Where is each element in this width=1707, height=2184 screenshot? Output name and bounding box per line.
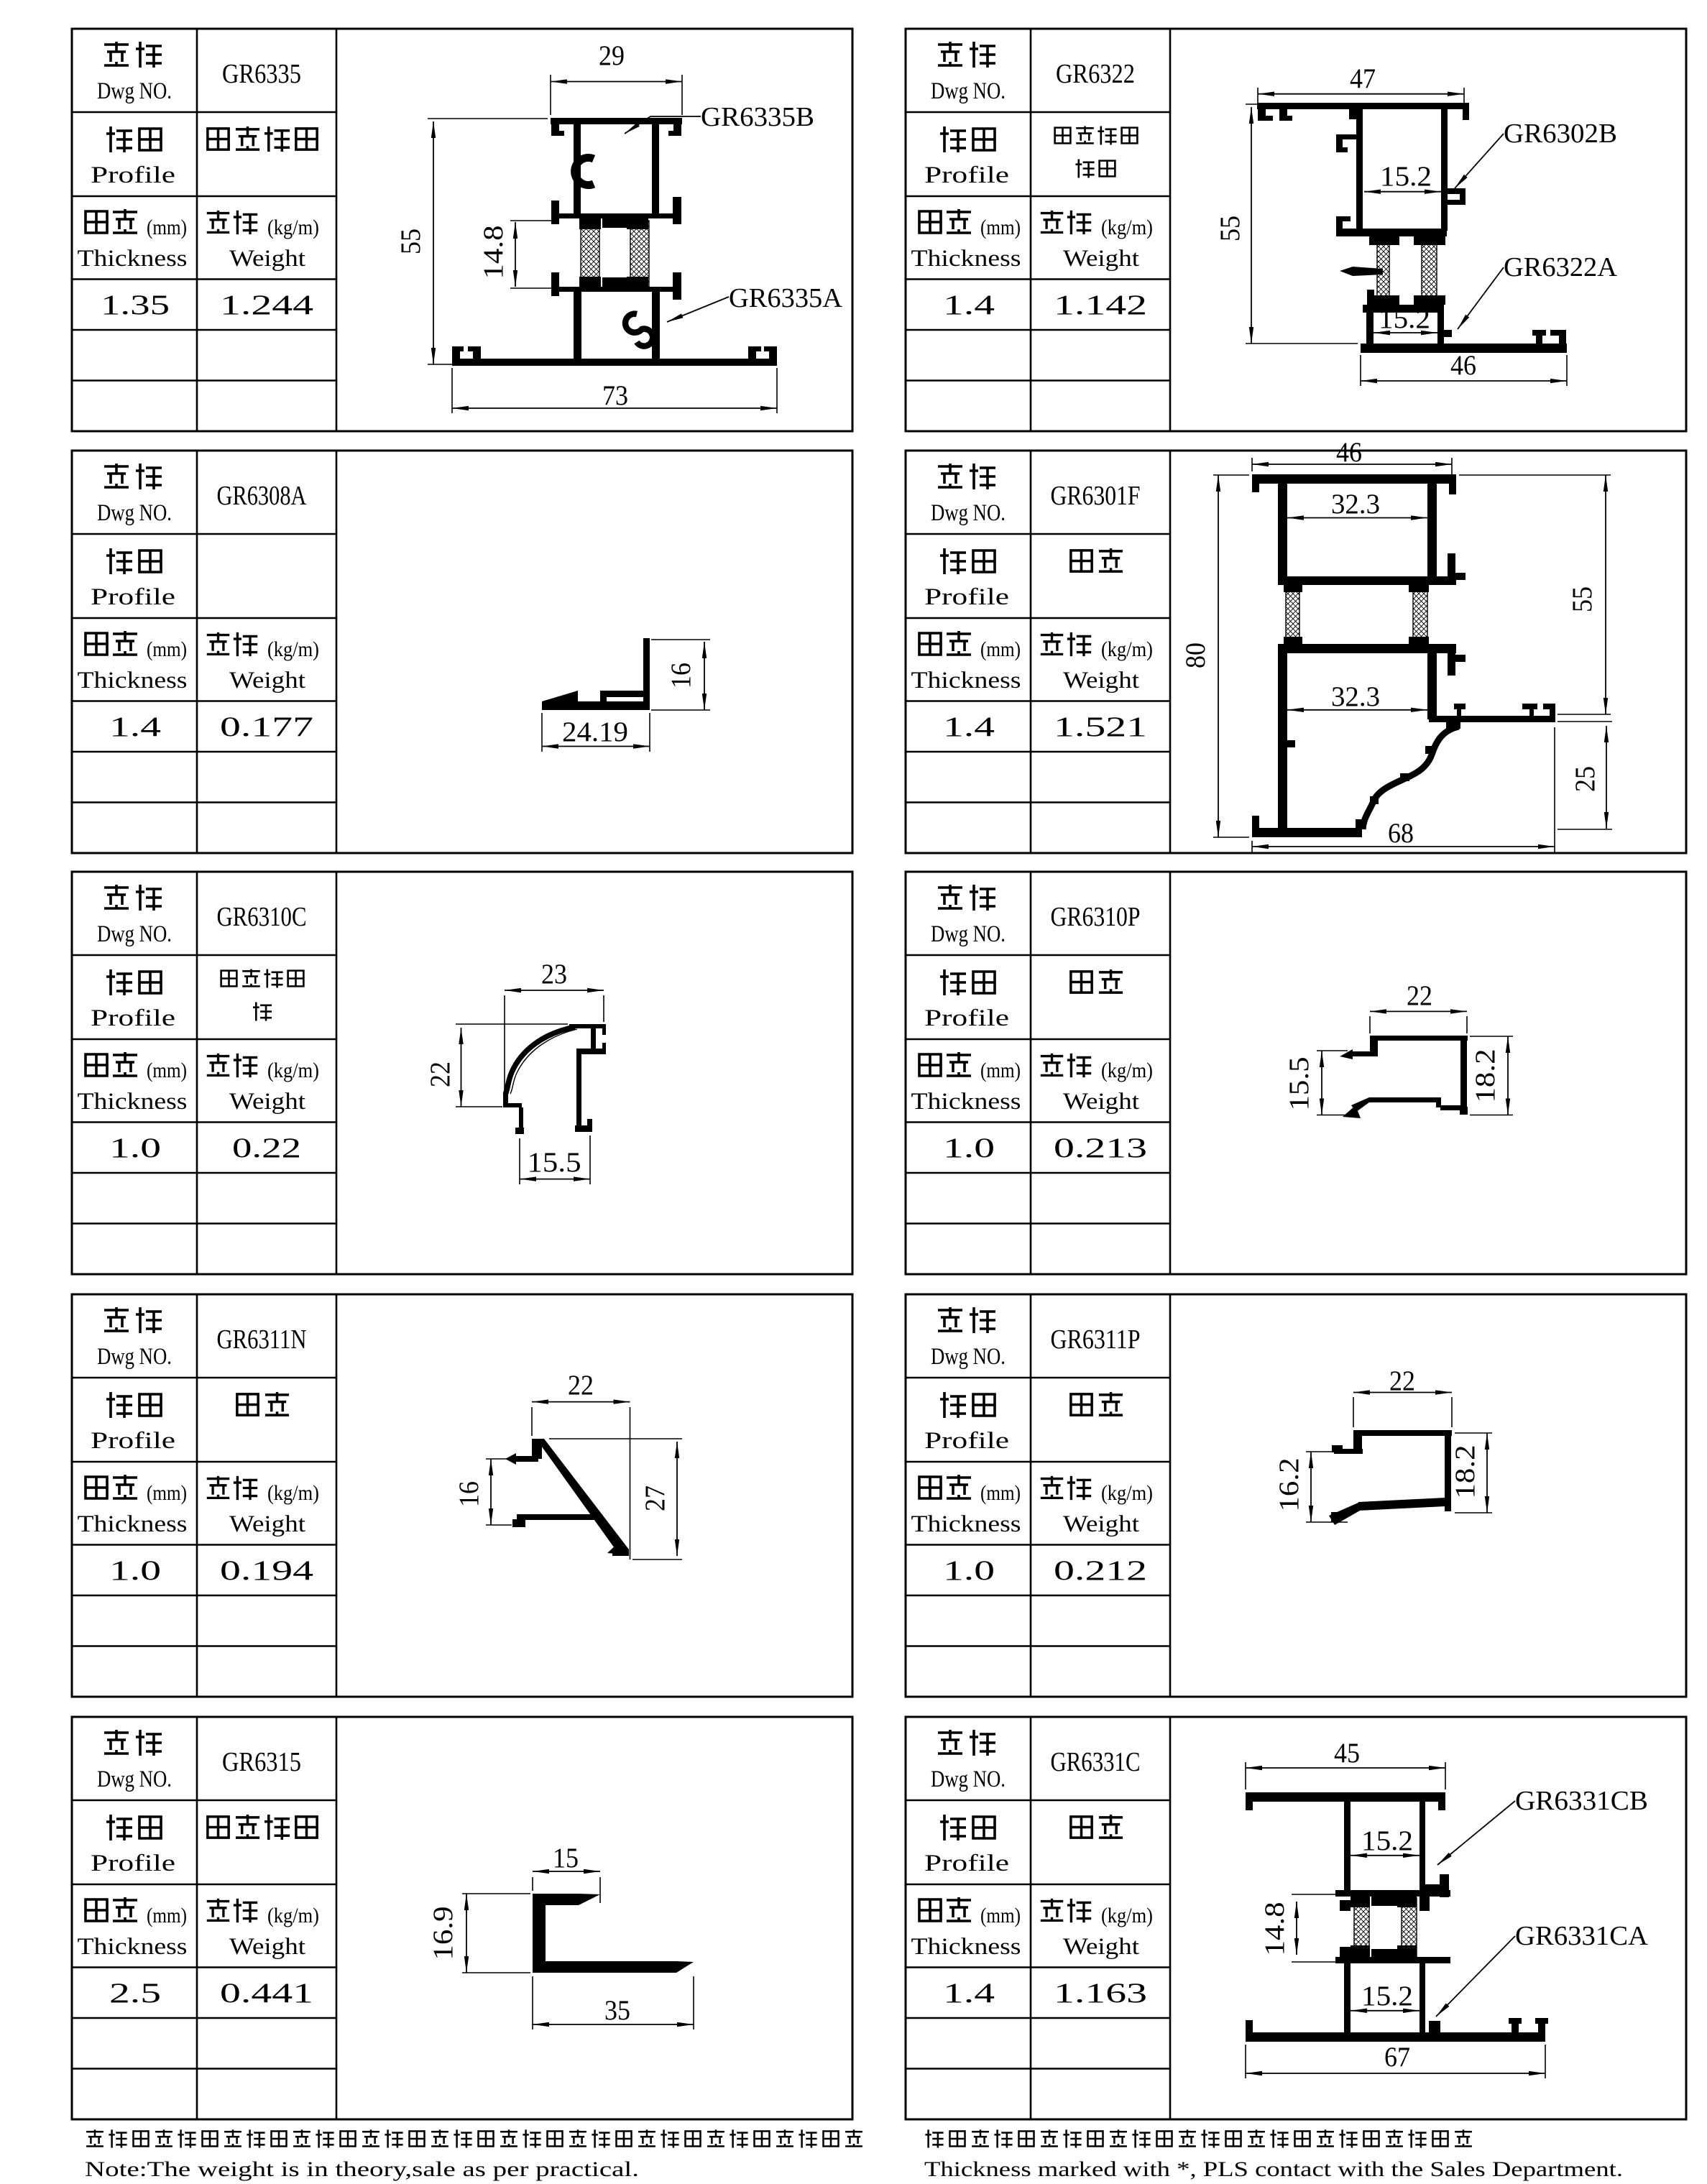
svg-text:25: 25 <box>1570 766 1601 792</box>
svg-text:Note:The weight is in theory,s: Note:The weight is in theory,sale as per… <box>85 2157 639 2181</box>
svg-text:GR6315: GR6315 <box>222 1747 301 1777</box>
svg-text:15.2: 15.2 <box>1380 161 1432 192</box>
svg-text:1.244: 1.244 <box>220 290 313 321</box>
svg-text:GR6301F: GR6301F <box>1051 481 1141 511</box>
svg-text:27: 27 <box>640 1485 671 1511</box>
svg-text:(mm): (mm) <box>980 1059 1021 1082</box>
svg-text:Dwg NO.: Dwg NO. <box>931 500 1006 526</box>
svg-text:GR6310P: GR6310P <box>1051 902 1141 932</box>
svg-text:Dwg NO.: Dwg NO. <box>931 1344 1006 1370</box>
svg-text:18.2: 18.2 <box>1450 1445 1481 1499</box>
svg-text:Dwg NO.: Dwg NO. <box>931 921 1006 947</box>
svg-text:Weight: Weight <box>229 246 305 272</box>
svg-text:Weight: Weight <box>1063 1511 1139 1537</box>
svg-text:1.0: 1.0 <box>943 1555 995 1586</box>
svg-text:Dwg NO.: Dwg NO. <box>97 1344 172 1370</box>
svg-text:1.4: 1.4 <box>109 711 161 742</box>
svg-text:(mm): (mm) <box>980 637 1021 661</box>
svg-text:GR6308A: GR6308A <box>217 481 307 511</box>
svg-text:Profile: Profile <box>924 1005 1009 1031</box>
svg-text:Thickness: Thickness <box>78 1511 188 1537</box>
svg-text:Profile: Profile <box>91 1428 175 1454</box>
svg-text:GR6310C: GR6310C <box>217 902 307 932</box>
svg-text:0.441: 0.441 <box>220 1978 313 2009</box>
svg-text:Thickness: Thickness <box>911 1089 1021 1115</box>
svg-text:GR6331CB: GR6331CB <box>1515 1786 1648 1816</box>
svg-text:55: 55 <box>1215 216 1246 241</box>
svg-text:1.4: 1.4 <box>943 1978 995 2009</box>
svg-text:67: 67 <box>1384 2042 1410 2073</box>
svg-text:GR6335A: GR6335A <box>729 283 843 313</box>
svg-text:(mm): (mm) <box>147 216 187 239</box>
svg-text:(kg/m): (kg/m) <box>1101 1059 1153 1082</box>
svg-text:0.212: 0.212 <box>1054 1555 1147 1586</box>
svg-text:45: 45 <box>1334 1738 1360 1769</box>
svg-text:47: 47 <box>1350 63 1376 94</box>
svg-text:(mm): (mm) <box>147 1059 187 1082</box>
svg-text:(kg/m): (kg/m) <box>267 1059 319 1082</box>
svg-text:1.0: 1.0 <box>943 1133 995 1164</box>
svg-text:GR6335B: GR6335B <box>701 102 814 132</box>
svg-text:GR6311P: GR6311P <box>1051 1324 1141 1355</box>
svg-text:0.213: 0.213 <box>1054 1133 1147 1164</box>
svg-text:Weight: Weight <box>229 1934 305 1960</box>
svg-text:Thickness: Thickness <box>911 1511 1021 1537</box>
svg-text:Weight: Weight <box>229 1511 305 1537</box>
svg-text:22: 22 <box>568 1370 594 1401</box>
svg-text:14.8: 14.8 <box>478 226 509 280</box>
svg-text:(kg/m): (kg/m) <box>267 1481 319 1505</box>
svg-text:(mm): (mm) <box>980 1481 1021 1505</box>
svg-text:Profile: Profile <box>924 1428 1009 1454</box>
svg-text:Weight: Weight <box>1063 246 1139 272</box>
svg-text:55: 55 <box>395 229 426 254</box>
svg-text:Thickness: Thickness <box>78 1934 188 1960</box>
svg-text:Profile: Profile <box>91 1851 175 1876</box>
svg-text:Dwg NO.: Dwg NO. <box>931 1766 1006 1792</box>
svg-text:Dwg NO.: Dwg NO. <box>97 921 172 947</box>
svg-text:15: 15 <box>553 1843 579 1874</box>
svg-text:Weight: Weight <box>1063 1089 1139 1115</box>
svg-text:14.8: 14.8 <box>1259 1902 1290 1956</box>
svg-text:GR6331C: GR6331C <box>1051 1747 1141 1777</box>
svg-text:22: 22 <box>1407 980 1432 1011</box>
svg-text:Profile: Profile <box>91 162 175 188</box>
svg-text:(kg/m): (kg/m) <box>1101 637 1153 661</box>
svg-text:22: 22 <box>425 1061 456 1087</box>
svg-text:Dwg NO.: Dwg NO. <box>97 500 172 526</box>
svg-text:Thickness: Thickness <box>911 668 1021 694</box>
svg-text:(mm): (mm) <box>147 1904 187 1927</box>
svg-text:1.4: 1.4 <box>943 711 995 742</box>
svg-text:16: 16 <box>454 1481 484 1507</box>
svg-text:46: 46 <box>1450 350 1476 381</box>
svg-text:(kg/m): (kg/m) <box>1101 1481 1153 1505</box>
svg-text:(mm): (mm) <box>980 1904 1021 1927</box>
svg-text:Thickness: Thickness <box>78 1089 188 1115</box>
svg-text:2.5: 2.5 <box>109 1978 161 2009</box>
svg-text:(kg/m): (kg/m) <box>1101 216 1153 239</box>
svg-text:Profile: Profile <box>924 1851 1009 1876</box>
svg-text:GR6335: GR6335 <box>222 59 301 89</box>
svg-text:Thickness marked with *, PLS c: Thickness marked with *, PLS contact wit… <box>924 2157 1623 2181</box>
svg-text:Dwg NO.: Dwg NO. <box>97 1766 172 1792</box>
svg-text:73: 73 <box>602 380 628 411</box>
svg-text:1.35: 1.35 <box>101 290 170 321</box>
svg-text:0.177: 0.177 <box>220 711 313 742</box>
svg-text:35: 35 <box>604 1995 630 2026</box>
svg-text:GR6331CA: GR6331CA <box>1515 1921 1649 1951</box>
svg-text:18.2: 18.2 <box>1470 1049 1501 1103</box>
svg-text:Weight: Weight <box>1063 668 1139 694</box>
svg-text:16.2: 16.2 <box>1274 1458 1305 1512</box>
svg-text:Weight: Weight <box>1063 1934 1139 1960</box>
svg-text:GR6322: GR6322 <box>1056 59 1135 89</box>
svg-text:15.2: 15.2 <box>1361 1981 1413 2012</box>
svg-text:(kg/m): (kg/m) <box>1101 1904 1153 1927</box>
svg-text:15.5: 15.5 <box>528 1147 581 1178</box>
svg-text:29: 29 <box>599 40 625 71</box>
svg-text:(mm): (mm) <box>147 1481 187 1505</box>
svg-text:GR6302B: GR6302B <box>1504 119 1617 149</box>
svg-text:1.0: 1.0 <box>109 1555 161 1586</box>
svg-text:16: 16 <box>666 663 696 688</box>
svg-text:22: 22 <box>1389 1365 1415 1396</box>
svg-text:Profile: Profile <box>91 1005 175 1031</box>
svg-text:0.22: 0.22 <box>232 1133 301 1164</box>
svg-text:55: 55 <box>1567 586 1598 612</box>
svg-text:23: 23 <box>541 959 567 990</box>
svg-text:(kg/m): (kg/m) <box>267 1904 319 1927</box>
svg-text:32.3: 32.3 <box>1331 681 1380 712</box>
svg-text:Thickness: Thickness <box>78 246 188 272</box>
svg-text:(kg/m): (kg/m) <box>267 216 319 239</box>
svg-text:1.163: 1.163 <box>1054 1978 1147 2009</box>
svg-text:Weight: Weight <box>229 1089 305 1115</box>
svg-text:Profile: Profile <box>924 584 1009 610</box>
svg-text:Thickness: Thickness <box>78 668 188 694</box>
svg-text:1.0: 1.0 <box>109 1133 161 1164</box>
svg-text:Dwg NO.: Dwg NO. <box>931 78 1006 104</box>
svg-text:Thickness: Thickness <box>911 1934 1021 1960</box>
svg-text:(mm): (mm) <box>147 637 187 661</box>
svg-text:Thickness: Thickness <box>911 246 1021 272</box>
svg-text:Weight: Weight <box>229 668 305 694</box>
svg-text:15.5: 15.5 <box>1284 1057 1315 1111</box>
svg-text:32.3: 32.3 <box>1331 489 1380 520</box>
svg-text:Profile: Profile <box>924 162 1009 188</box>
svg-text:Dwg NO.: Dwg NO. <box>97 78 172 104</box>
svg-text:GR6311N: GR6311N <box>217 1324 307 1355</box>
svg-text:GR6322A: GR6322A <box>1504 252 1618 282</box>
svg-text:(mm): (mm) <box>980 216 1021 239</box>
svg-text:15.2: 15.2 <box>1361 1825 1413 1856</box>
svg-text:1.142: 1.142 <box>1054 290 1147 321</box>
svg-text:(kg/m): (kg/m) <box>267 637 319 661</box>
svg-text:80: 80 <box>1180 642 1211 668</box>
svg-text:0.194: 0.194 <box>220 1555 313 1586</box>
svg-text:68: 68 <box>1388 818 1414 849</box>
svg-text:Profile: Profile <box>91 584 175 610</box>
svg-text:1.4: 1.4 <box>943 290 995 321</box>
svg-text:1.521: 1.521 <box>1054 711 1147 742</box>
svg-text:16.9: 16.9 <box>428 1907 459 1960</box>
svg-text:46: 46 <box>1336 437 1362 468</box>
svg-text:24.19: 24.19 <box>562 717 628 747</box>
